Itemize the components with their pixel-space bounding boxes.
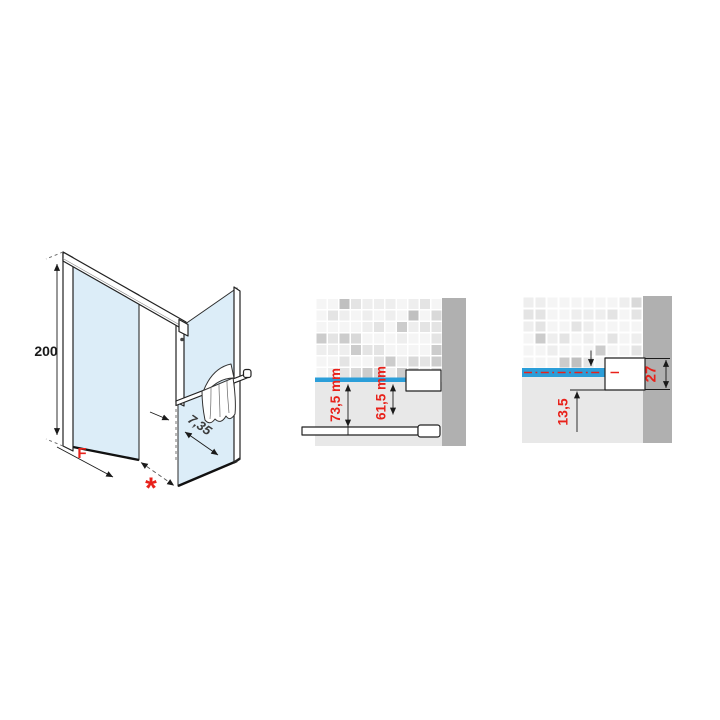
wall-tile	[409, 334, 419, 344]
wall-tile	[409, 345, 419, 355]
wall-tile	[363, 322, 373, 332]
wall-tile	[409, 357, 419, 367]
wall-tile	[386, 311, 396, 321]
wall-tile	[386, 322, 396, 332]
wall-tile	[363, 299, 373, 309]
wall-tile	[374, 299, 384, 309]
wall-tile	[374, 345, 384, 355]
wall-tile	[432, 345, 442, 355]
ext-line-top	[46, 252, 63, 259]
wall-tile	[620, 298, 630, 308]
wall-tile	[620, 346, 630, 356]
wall-tile	[572, 322, 582, 332]
wall-tile	[524, 358, 534, 368]
wall-tile	[584, 322, 594, 332]
wall-tile	[524, 298, 534, 308]
wall-tile	[374, 322, 384, 332]
wall-tile	[397, 345, 407, 355]
wall-tile	[340, 345, 350, 355]
side-panel-wall-profile	[234, 287, 240, 463]
wall-tile	[363, 334, 373, 344]
wall-tile	[328, 357, 338, 367]
wall-tile	[397, 299, 407, 309]
wall-tile	[536, 298, 546, 308]
tile-wall	[524, 298, 642, 368]
wall-tile	[386, 299, 396, 309]
wall-tile	[620, 322, 630, 332]
wall-tile	[524, 346, 534, 356]
wall-tile	[340, 357, 350, 367]
wall-tile	[548, 322, 558, 332]
glass-edge-end-cap	[418, 425, 440, 437]
pointer-arrow	[150, 412, 169, 420]
isometric-drawing: 200 F * 7,35	[28, 238, 262, 505]
wall-tile	[351, 299, 361, 309]
wall-tile	[420, 322, 430, 332]
wall-tile	[560, 298, 570, 308]
dim-61-5-label: 61,5 mm	[374, 366, 389, 420]
wall-tile	[397, 334, 407, 344]
wall-tile	[548, 310, 558, 320]
dim-13-5-label: 13,5	[555, 398, 571, 425]
wall-tile	[340, 322, 350, 332]
wall-tile	[536, 358, 546, 368]
dim-f-label: F	[77, 445, 86, 462]
wall-profile-box	[605, 358, 645, 390]
wall-tile	[608, 322, 618, 332]
wall-tile	[596, 346, 606, 356]
wall-tile	[560, 310, 570, 320]
wall-tile	[620, 334, 630, 344]
wall-tile	[548, 334, 558, 344]
wall-tile	[374, 357, 384, 367]
technical-drawing-page: 200 F * 7,35 73,	[0, 0, 720, 720]
wall-tile	[432, 299, 442, 309]
wall-tile	[608, 310, 618, 320]
wall-tile	[608, 334, 618, 344]
wall-tile	[340, 334, 350, 344]
wall-tile	[363, 368, 373, 378]
detail-profile-section: 27 13,5	[516, 290, 695, 452]
wall-tile	[340, 299, 350, 309]
wall-tile	[432, 357, 442, 367]
wall-tile	[420, 345, 430, 355]
wall-tile	[386, 357, 396, 367]
wall-tile	[420, 357, 430, 367]
dim-opening-label: *	[145, 472, 157, 505]
wall-tile	[632, 346, 642, 356]
wall-tile	[328, 322, 338, 332]
wall-tile	[608, 298, 618, 308]
wall-tile	[536, 346, 546, 356]
wall-tile	[328, 334, 338, 344]
wall-tile	[317, 357, 327, 367]
wall-tile	[317, 322, 327, 332]
wall-tile	[536, 322, 546, 332]
wall-tile	[328, 345, 338, 355]
wall-tile	[584, 298, 594, 308]
wall-tile	[596, 334, 606, 344]
wall-tile	[620, 310, 630, 320]
wall-tile	[409, 311, 419, 321]
wall-tile	[632, 334, 642, 344]
wall-tile	[632, 298, 642, 308]
wall-tile	[420, 334, 430, 344]
wall-tile	[317, 311, 327, 321]
wall-band	[442, 298, 466, 446]
wall-tile	[363, 357, 373, 367]
wall-tile	[596, 310, 606, 320]
dim-200-label: 200	[34, 343, 58, 359]
wall-tile	[524, 310, 534, 320]
wall-tile	[386, 334, 396, 344]
wall-tile	[536, 310, 546, 320]
wall-tile	[397, 311, 407, 321]
wall-tile	[560, 322, 570, 332]
wall-tile	[420, 311, 430, 321]
wall-tile	[584, 358, 594, 368]
wall-tile	[397, 322, 407, 332]
wall-tile	[317, 368, 327, 378]
towel-bar-end-knob	[244, 370, 252, 378]
wall-tile	[351, 334, 361, 344]
wall-tile	[351, 345, 361, 355]
wall-tile	[596, 322, 606, 332]
dim-73-5-label: 73,5 mm	[328, 368, 343, 422]
wall-tile	[560, 346, 570, 356]
detail-towel-rail-section: 73,5 mm 61,5 mm	[296, 290, 474, 452]
wall-tile	[317, 334, 327, 344]
wall-tile	[397, 357, 407, 367]
wall-tile	[560, 334, 570, 344]
wall-tile	[572, 358, 582, 368]
wall-tile	[572, 298, 582, 308]
wall-tile	[548, 346, 558, 356]
wall-tile	[584, 346, 594, 356]
glass-edge-bar	[302, 427, 418, 435]
wall-tile	[432, 322, 442, 332]
wall-tile	[374, 334, 384, 344]
wall-tile	[584, 334, 594, 344]
wall-tile	[608, 346, 618, 356]
wall-tile	[572, 346, 582, 356]
wall-tile	[386, 345, 396, 355]
post-screw-icon	[180, 338, 184, 342]
wall-tile	[432, 334, 442, 344]
wall-tile	[363, 345, 373, 355]
dim-27-label: 27	[643, 366, 660, 383]
wall-tile	[409, 322, 419, 332]
wall-tile	[409, 299, 419, 309]
wall-tile	[363, 311, 373, 321]
wall-tile	[548, 358, 558, 368]
wall-tile	[317, 299, 327, 309]
wall-tile	[584, 310, 594, 320]
wall-tile	[432, 311, 442, 321]
wall-bracket	[406, 370, 441, 391]
wall-tile	[596, 358, 606, 368]
wall-tile	[374, 311, 384, 321]
wall-tile	[596, 298, 606, 308]
wall-tile	[632, 322, 642, 332]
wall-tile	[351, 368, 361, 378]
wall-tile	[328, 299, 338, 309]
ext-line-bottom	[46, 439, 63, 446]
wall-tile	[548, 298, 558, 308]
wall-tile	[351, 357, 361, 367]
wall-tile	[572, 334, 582, 344]
wall-tile	[524, 334, 534, 344]
wall-tile	[351, 322, 361, 332]
wall-tile	[340, 311, 350, 321]
wall-tile	[560, 358, 570, 368]
wall-tile	[524, 322, 534, 332]
wall-tile	[317, 345, 327, 355]
left-wall-profile	[63, 252, 73, 451]
wall-tile	[536, 334, 546, 344]
wall-tile	[328, 311, 338, 321]
wall-tile	[572, 310, 582, 320]
wall-tile	[632, 310, 642, 320]
wall-tile	[351, 311, 361, 321]
wall-tile	[420, 299, 430, 309]
